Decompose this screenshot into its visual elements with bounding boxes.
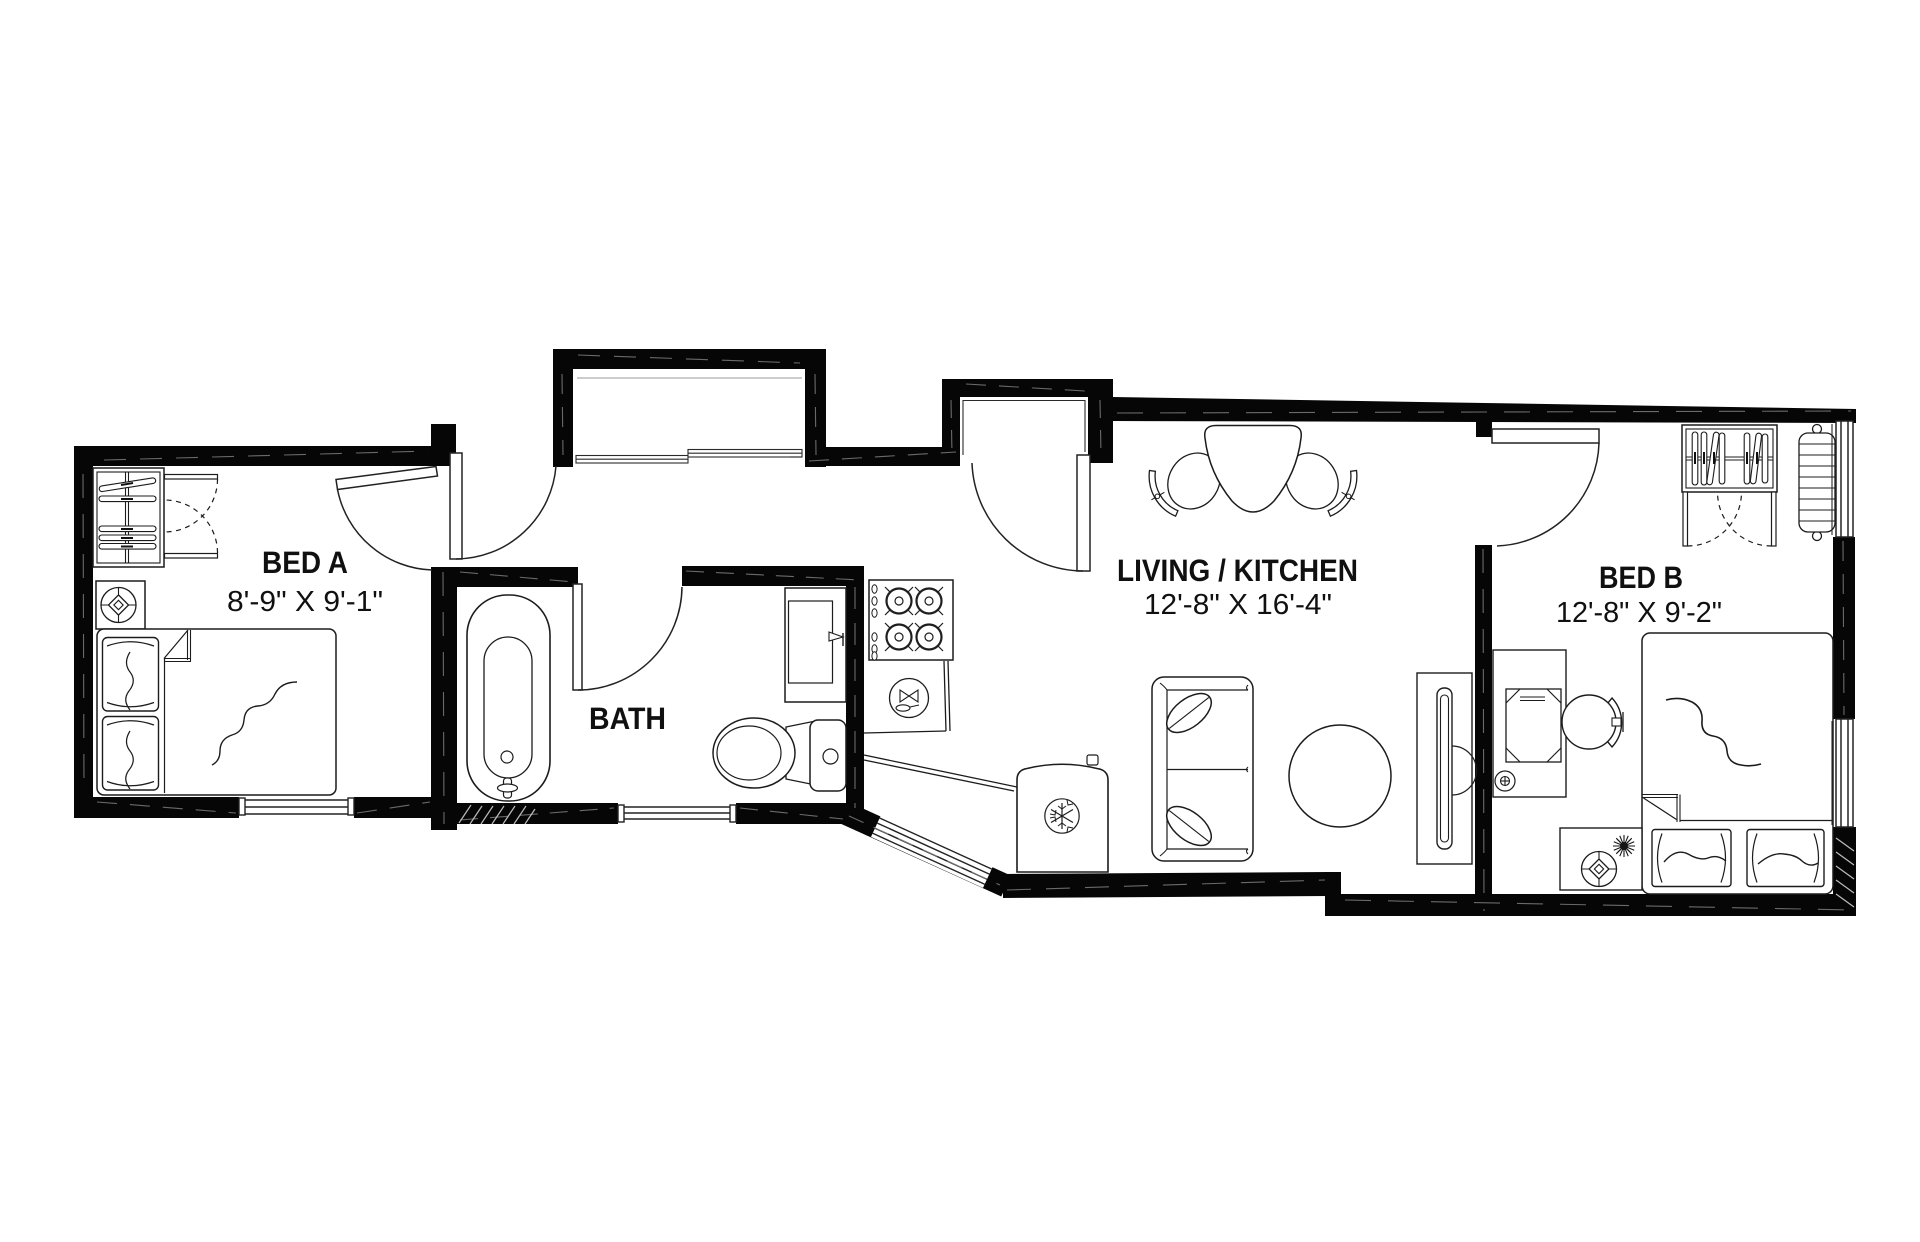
svg-text:LIVING / KITCHEN: LIVING / KITCHEN: [1117, 553, 1358, 588]
svg-text:12'-8" X 9'-2": 12'-8" X 9'-2": [1556, 597, 1722, 629]
svg-text:BED A: BED A: [262, 545, 348, 580]
svg-text:12'-8" X 16'-4": 12'-8" X 16'-4": [1144, 589, 1332, 621]
svg-text:BATH: BATH: [589, 701, 666, 736]
svg-text:BED B: BED B: [1599, 560, 1683, 595]
svg-text:8'-9" X 9'-1": 8'-9" X 9'-1": [227, 586, 383, 618]
